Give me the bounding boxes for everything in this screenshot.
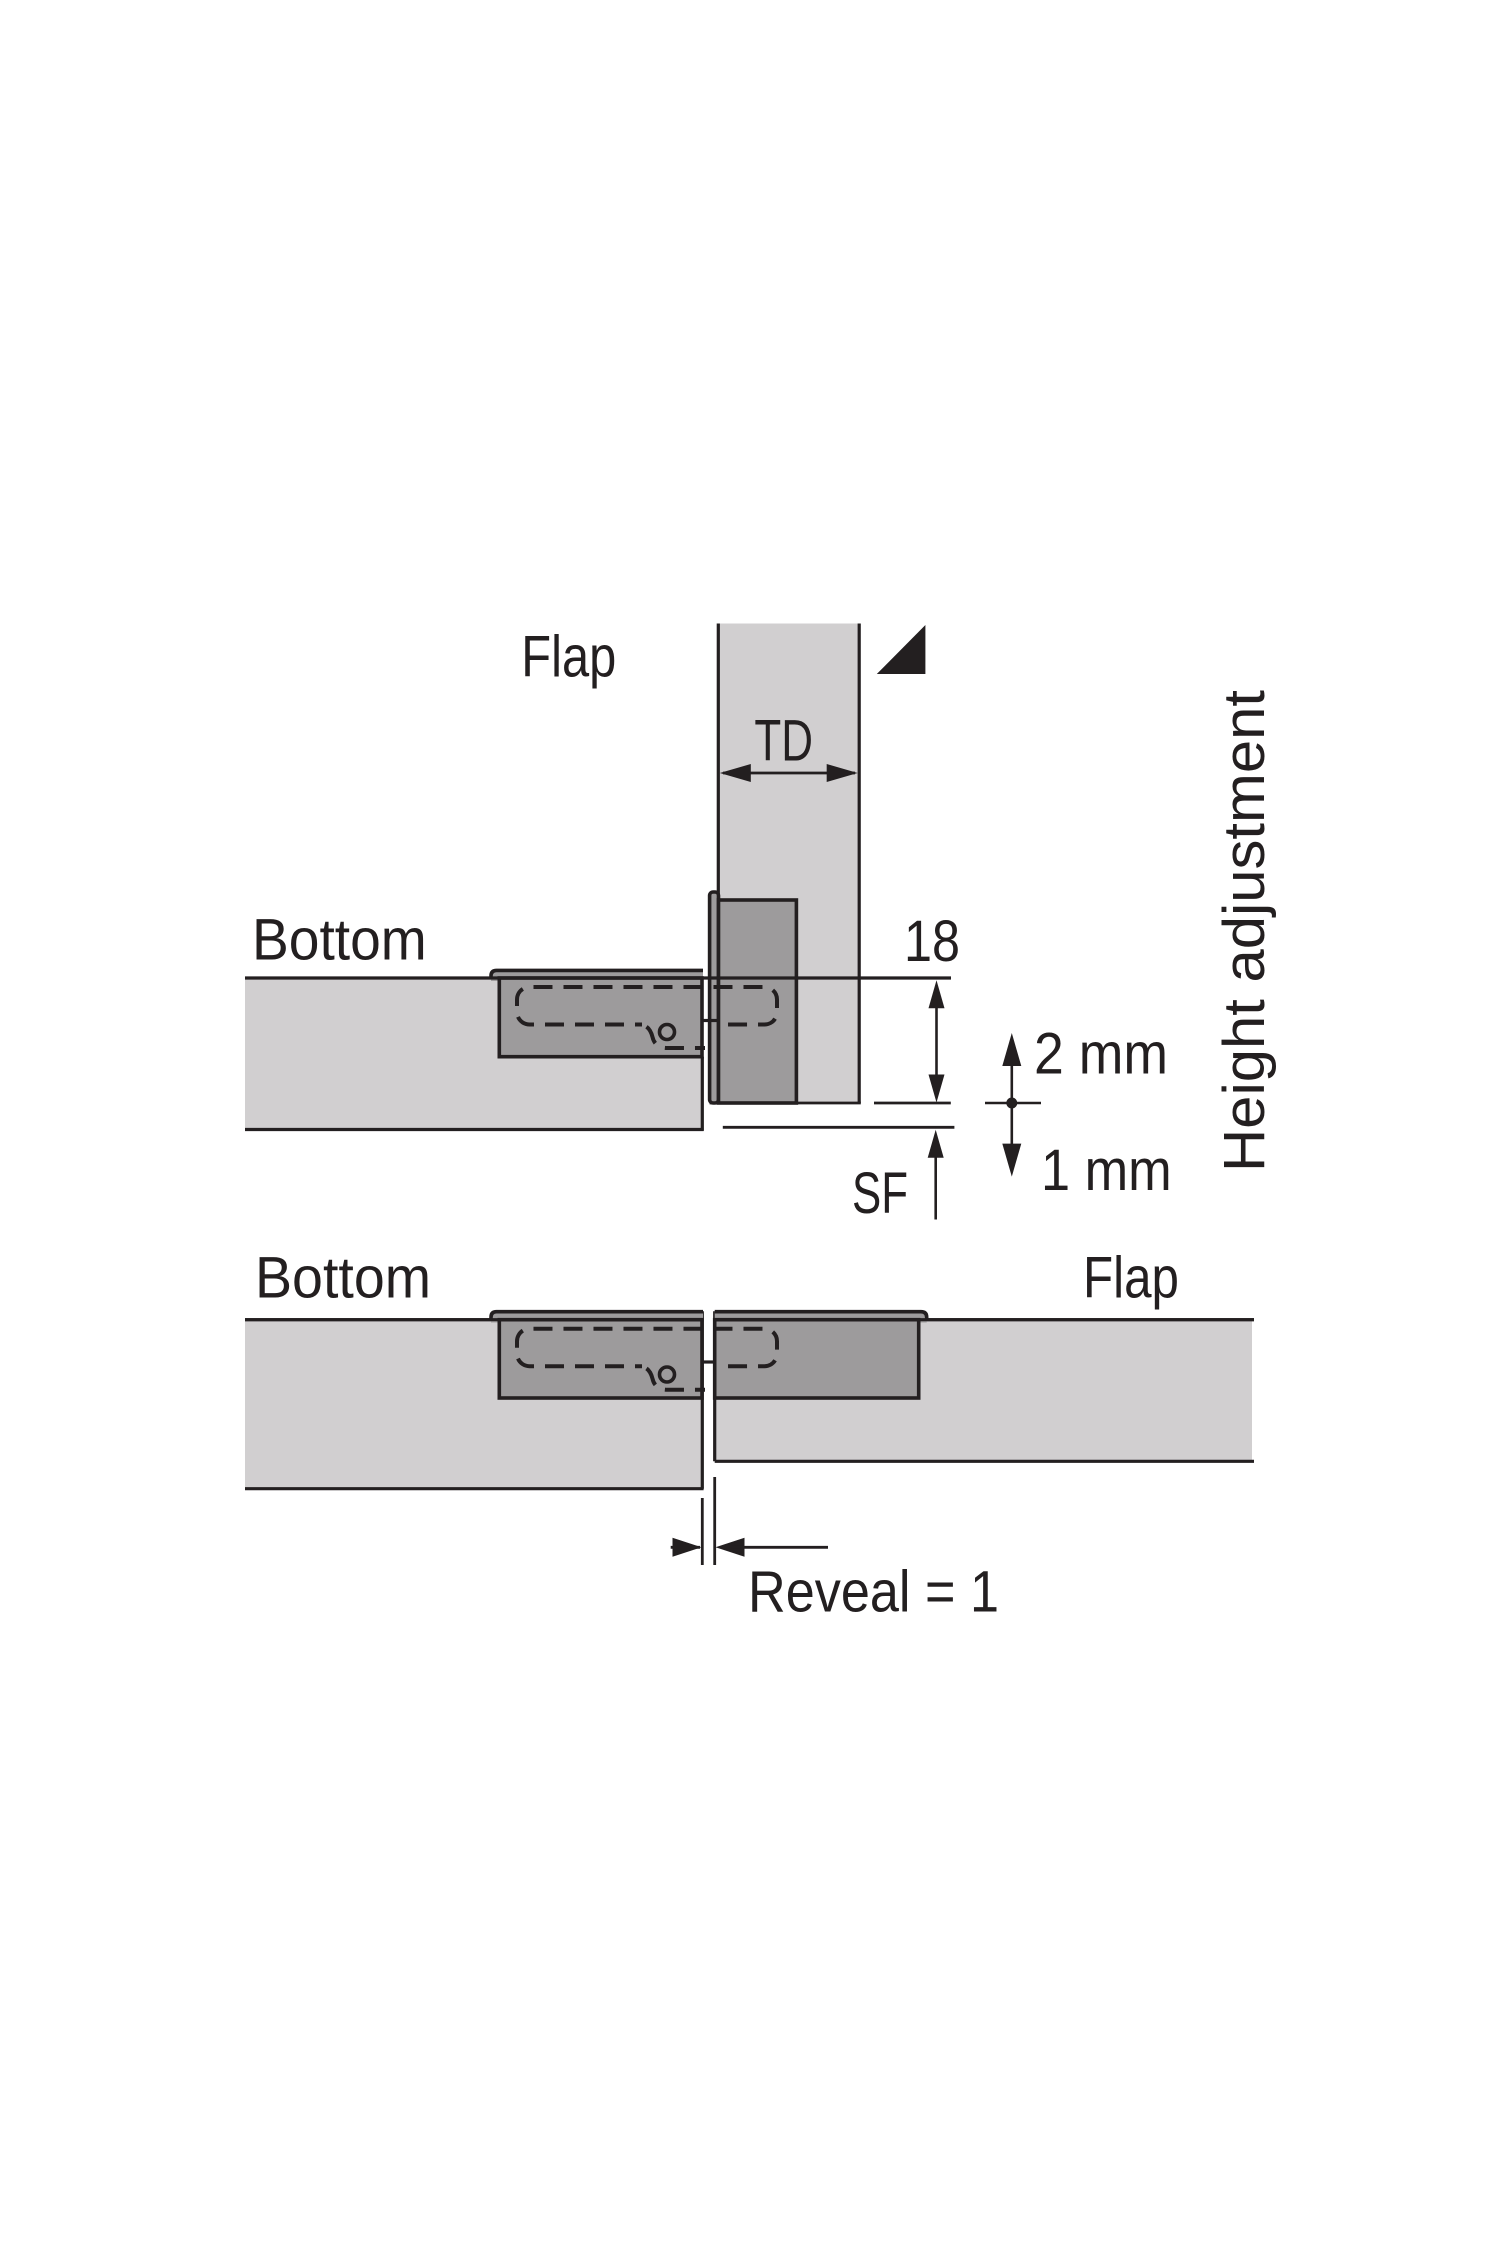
svg-text:Bottom: Bottom xyxy=(255,1246,431,1311)
svg-text:Flap: Flap xyxy=(521,624,616,689)
svg-text:Flap: Flap xyxy=(1083,1246,1179,1311)
svg-text:Bottom: Bottom xyxy=(252,908,427,973)
svg-text:Height adjustment: Height adjustment xyxy=(1212,690,1277,1172)
svg-text:Reveal = 1: Reveal = 1 xyxy=(748,1560,999,1625)
svg-text:2 mm: 2 mm xyxy=(1034,1022,1168,1087)
svg-text:18: 18 xyxy=(904,909,960,974)
svg-text:TD: TD xyxy=(754,709,813,774)
svg-text:1 mm: 1 mm xyxy=(1041,1138,1172,1203)
svg-text:SF: SF xyxy=(852,1161,908,1226)
